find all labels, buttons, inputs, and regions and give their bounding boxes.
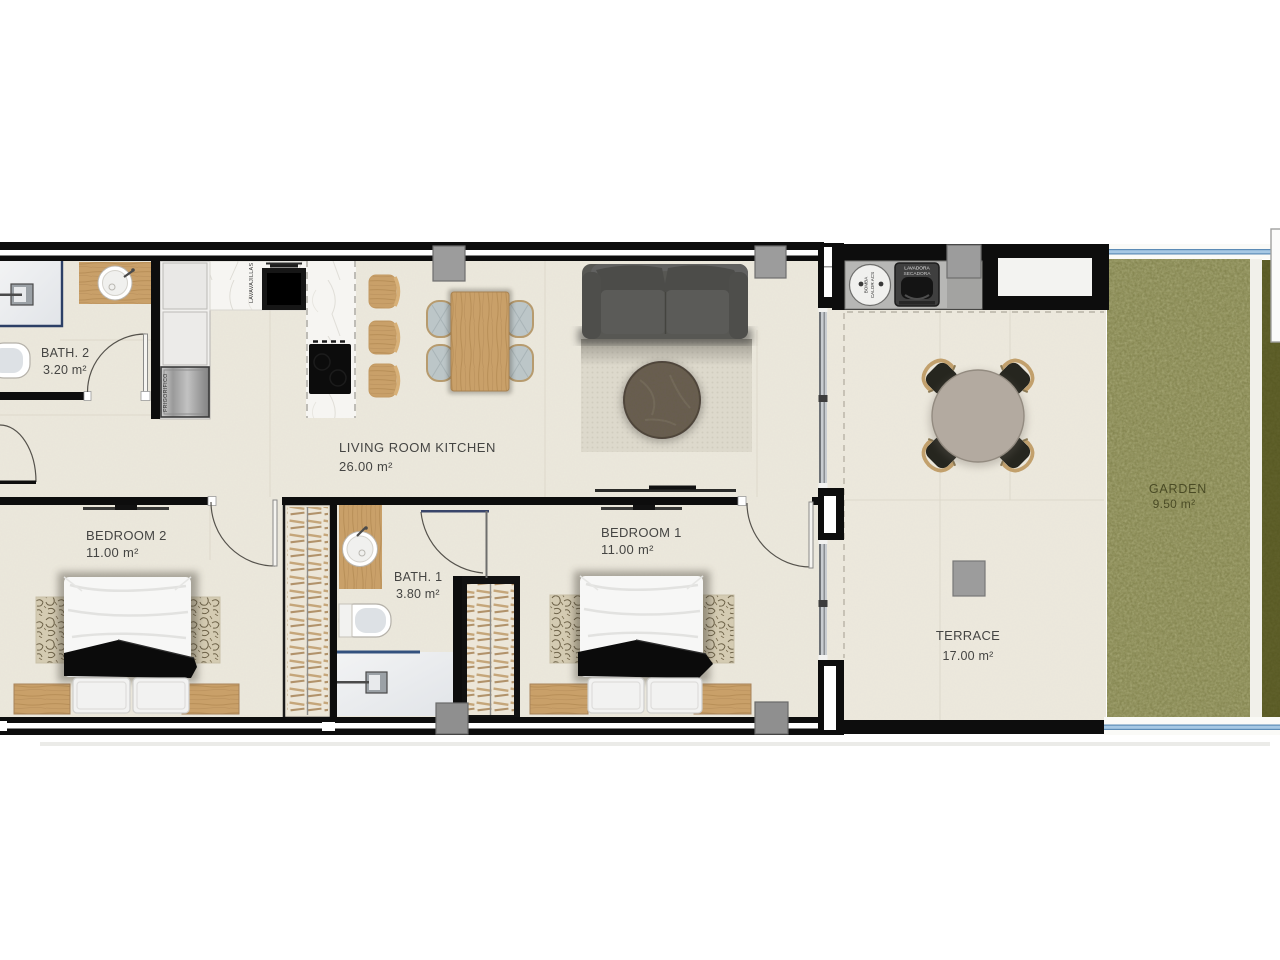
- svg-text:BATH. 1: BATH. 1: [394, 570, 442, 584]
- svg-text:GARDEN: GARDEN: [1149, 482, 1207, 496]
- svg-text:26.00 m²: 26.00 m²: [339, 459, 393, 474]
- svg-text:BEDROOM 1: BEDROOM 1: [601, 525, 682, 540]
- svg-text:BOMBA: BOMBA: [864, 276, 869, 294]
- svg-text:3.80 m²: 3.80 m²: [396, 587, 440, 601]
- svg-text:9.50 m²: 9.50 m²: [1153, 497, 1196, 511]
- svg-text:CALOR ACS: CALOR ACS: [870, 272, 875, 298]
- svg-text:BEDROOM 2: BEDROOM 2: [86, 528, 167, 543]
- svg-text:TERRACE: TERRACE: [936, 628, 1000, 643]
- svg-text:FRIGORIFICO: FRIGORIFICO: [163, 373, 169, 412]
- svg-text:LAVAVAJILLAS: LAVAVAJILLAS: [249, 263, 255, 303]
- svg-text:3.20 m²: 3.20 m²: [43, 363, 87, 377]
- svg-text:BATH. 2: BATH. 2: [41, 346, 89, 360]
- svg-text:LIVING ROOM KITCHEN: LIVING ROOM KITCHEN: [339, 440, 496, 455]
- svg-text:SECADORA: SECADORA: [904, 271, 932, 277]
- svg-text:11.00 m²: 11.00 m²: [86, 545, 139, 560]
- svg-text:LAVADORA: LAVADORA: [904, 266, 930, 272]
- svg-text:11.00 m²: 11.00 m²: [601, 542, 654, 557]
- svg-text:17.00 m²: 17.00 m²: [943, 649, 994, 663]
